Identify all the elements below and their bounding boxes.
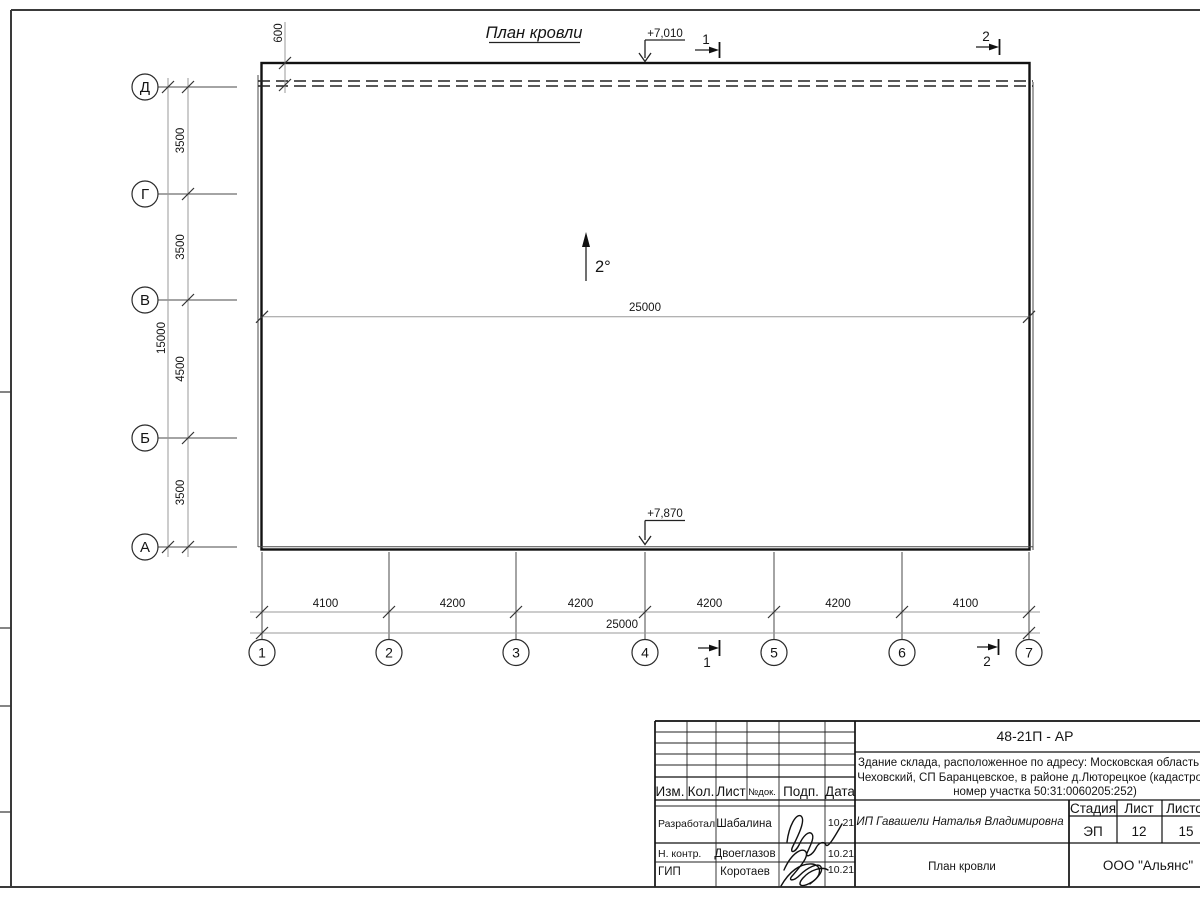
project-line-1: Здание склада, расположенное по адресу: … [858,757,1200,769]
section-arrow-icon [709,645,719,652]
row-dim-label: 3500 [175,128,187,154]
section-arrow-icon [709,47,719,54]
stage-label: Стадия [1070,801,1116,816]
section-mark-2-top: 2 [976,29,1000,55]
sheet-label: Лист [1124,801,1153,816]
axis-label: 2 [385,645,393,661]
name-gip: Коротаев [720,866,770,878]
drawing-sheet: План кровли 25000 2° +7,010 +7,870 [0,0,1200,900]
sheet-title: План кровли [928,861,996,873]
inner-dimension-25000: 25000 [256,302,1035,323]
name-developer: Шабалина [716,818,772,830]
plan-title-label: План кровли [486,24,583,42]
section-mark-1-bottom: 1 [698,640,720,670]
axis-label: В [140,292,150,309]
slope-label: 2° [595,258,611,276]
section-1-label: 1 [702,32,710,47]
overhang-dimension-600: 600 [273,22,291,93]
col-dim-label: 4200 [440,598,466,610]
axis-label: Г [141,186,149,203]
overhang-dim-label: 600 [273,23,285,42]
col-dim-label: 4200 [825,598,851,610]
name-ncontr: Двоеглазов [714,848,775,860]
col-dim-label: 4200 [697,598,723,610]
roof-plan-drawing: План кровли 25000 2° +7,010 +7,870 [0,0,1200,900]
company-name: ООО "Альянс" [1103,858,1193,873]
row-dimension-chain: 3500 3500 4500 3500 [175,78,194,557]
role-developer: Разработал [658,818,715,830]
section-arrow-icon [988,644,998,651]
axis-label: 5 [770,645,778,661]
date-ncontr: 10.21 [828,848,854,860]
header-ndok: №док. [748,787,776,798]
role-gip: ГИП [658,866,681,878]
client-name: ИП Гавашели Наталья Владимировна [856,816,1063,828]
header-izm: Изм. [656,784,685,799]
row-dim-label: 3500 [175,480,187,506]
slope-arrow-icon [582,232,590,247]
axis-label: А [140,539,150,556]
axis-label: 1 [258,645,266,661]
elevation-top-label: +7,010 [647,28,683,40]
col-dim-label: 4200 [568,598,594,610]
header-kol: Кол. [688,784,715,799]
section-2-label: 2 [983,654,991,669]
section-2-label: 2 [982,29,990,44]
header-list: Лист [716,784,745,799]
header-data: Дата [825,784,855,799]
row-dim-label: 3500 [175,234,187,260]
stage-value: ЭП [1083,824,1102,839]
section-arrow-icon [989,44,999,51]
axis-label: Д [140,79,150,96]
date-gip: 10.21 [828,864,854,876]
col-dim-label: 4100 [313,598,339,610]
axis-label: 3 [512,645,520,661]
axis-label: Б [140,430,150,447]
axis-label: 7 [1025,645,1033,661]
project-line-3: номер участка 50:31:0060205:252) [953,786,1137,798]
slope-mark: 2° [582,232,611,281]
sheets-value: 15 [1178,824,1193,839]
col-dim-label: 4100 [953,598,979,610]
elevation-mark-bottom: +7,870 [639,508,685,545]
project-line-2: Чеховский, СП Баранцевское, в районе д.Л… [857,772,1200,784]
sheet-value: 12 [1131,824,1146,839]
col-total-label: 25000 [606,619,638,631]
section-1-label: 1 [703,655,711,670]
axis-label: 4 [641,645,649,661]
section-mark-2-bottom: 2 [977,639,999,669]
row-dim-label: 4500 [175,356,187,382]
row-total-label: 15000 [156,322,168,354]
column-axes: 1 2 3 4 5 6 7 [249,552,1042,666]
date-developer: 10.21 [828,817,854,829]
sheets-label: Листов [1166,801,1200,816]
axis-label: 6 [898,645,906,661]
doc-number: 48-21П - АР [997,728,1074,744]
elevation-bottom-label: +7,870 [647,508,683,520]
inner-dim-label: 25000 [629,302,661,314]
section-mark-1-top: 1 [695,32,720,58]
row-total-dimension: 15000 [156,78,174,557]
header-podp: Подп. [783,784,819,799]
elevation-mark-top: +7,010 [639,28,685,62]
drawing-title: План кровли [486,24,583,43]
role-ncontr: Н. контр. [658,848,701,860]
hidden-wall-lines [258,81,1033,86]
